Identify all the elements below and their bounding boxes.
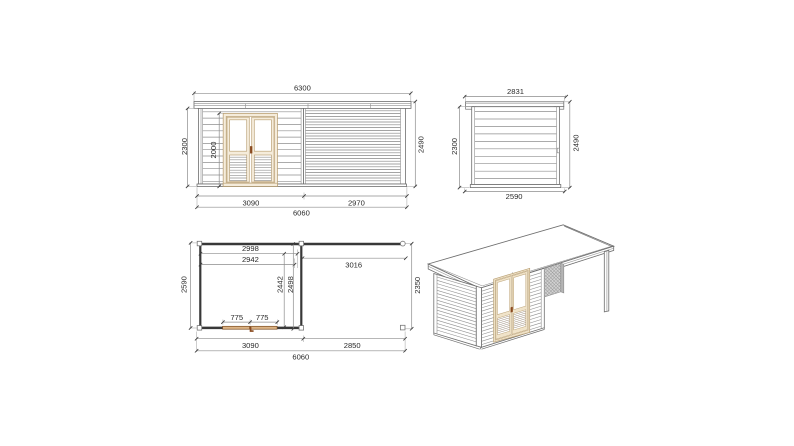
svg-text:2970: 2970 — [348, 198, 365, 207]
svg-text:2300: 2300 — [180, 138, 189, 155]
svg-text:3090: 3090 — [242, 341, 259, 350]
svg-text:6060: 6060 — [293, 208, 310, 217]
svg-text:3090: 3090 — [242, 198, 259, 207]
svg-text:775: 775 — [230, 313, 243, 322]
svg-text:2590: 2590 — [180, 276, 189, 293]
svg-text:2942: 2942 — [242, 255, 259, 264]
svg-text:775: 775 — [256, 313, 269, 322]
svg-text:6300: 6300 — [294, 84, 311, 93]
svg-text:2831: 2831 — [507, 87, 524, 96]
svg-text:2850: 2850 — [344, 341, 361, 350]
svg-text:2490: 2490 — [416, 136, 425, 153]
svg-text:3016: 3016 — [345, 260, 362, 269]
svg-text:2490: 2490 — [572, 135, 581, 152]
svg-text:2498: 2498 — [286, 276, 295, 293]
svg-text:2000: 2000 — [209, 142, 218, 159]
svg-text:2442: 2442 — [276, 276, 285, 293]
svg-text:6060: 6060 — [292, 353, 309, 362]
svg-text:2350: 2350 — [413, 277, 422, 294]
svg-text:2590: 2590 — [506, 192, 523, 201]
svg-text:2998: 2998 — [242, 244, 259, 253]
svg-text:2300: 2300 — [450, 138, 459, 155]
